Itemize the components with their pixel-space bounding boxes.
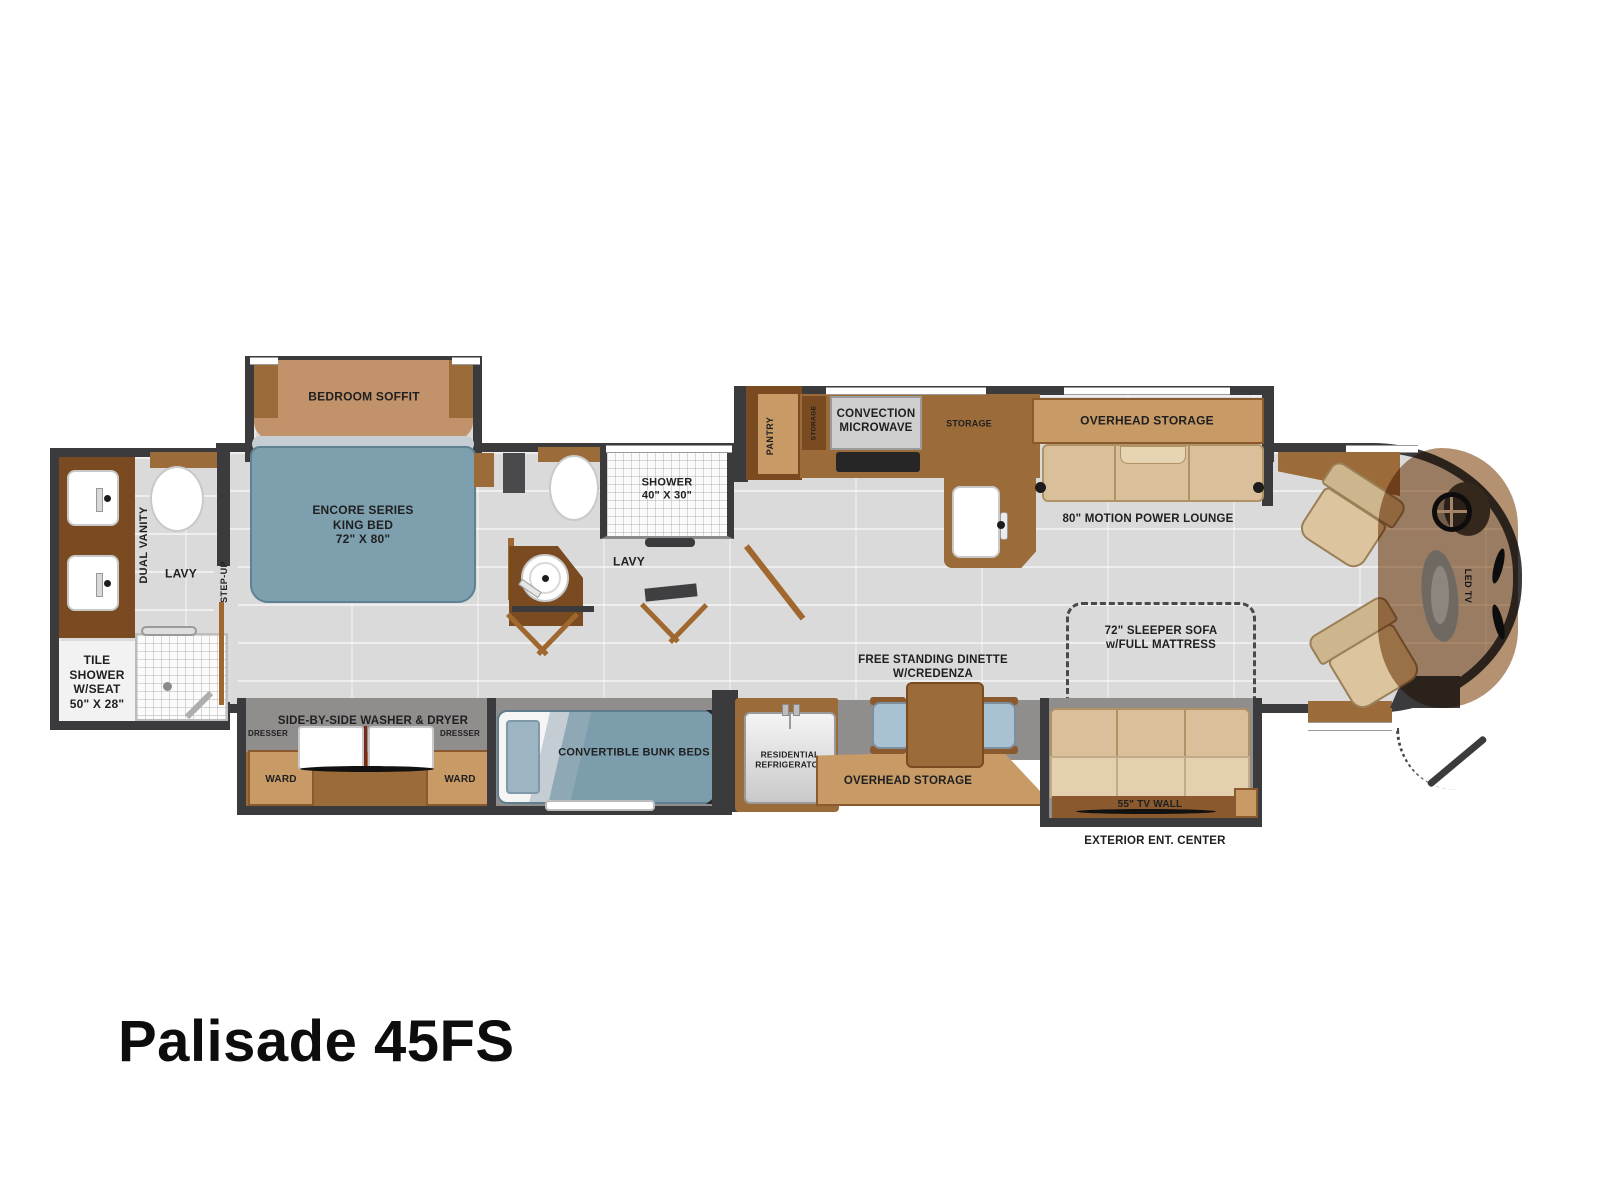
label-mid-shower: SHOWER 40" X 30" <box>642 477 693 504</box>
step-threshold <box>219 602 224 705</box>
sofa-seam <box>1114 446 1116 500</box>
plan-title: Palisade 45FS <box>118 1008 515 1075</box>
shower-drain-icon <box>163 682 172 691</box>
window <box>250 357 278 365</box>
toilet-icon <box>549 455 599 521</box>
sofa-seam <box>1188 446 1190 500</box>
recline-button <box>1253 482 1264 493</box>
fridge-handle <box>793 704 800 716</box>
washer-front-arc <box>300 766 434 772</box>
label-tv-wall: 55" TV WALL <box>1118 799 1183 811</box>
label-bunk-beds: CONVERTIBLE BUNK BEDS <box>558 746 710 759</box>
vanity-lip <box>512 606 594 612</box>
step-wall <box>217 448 229 566</box>
label-dual-vanity: DUAL VANITY <box>138 506 150 583</box>
label-overhead-storage-bottom: OVERHEAD STORAGE <box>844 774 972 788</box>
label-tile-shower: TILE SHOWER W/SEAT 50" X 28" <box>69 653 124 712</box>
washer-divider <box>364 726 367 770</box>
dinette-table <box>906 682 984 768</box>
sofa-seam <box>1116 758 1118 796</box>
label-sleeper-sofa: 72" SLEEPER SOFA w/FULL MATTRESS <box>1105 624 1218 652</box>
dryer-unit <box>368 726 434 770</box>
entry-window <box>1308 722 1392 731</box>
cooktop <box>836 452 920 472</box>
windshield-pod-inner <box>1431 566 1449 624</box>
label-dresser-left: DRESSER <box>248 729 288 739</box>
window <box>606 445 732 453</box>
sofa-seam <box>1116 710 1118 756</box>
label-washer-dryer: SIDE-BY-SIDE WASHER & DRYER <box>278 714 468 728</box>
label-step-up: STEP-UP <box>219 561 229 603</box>
label-power-lounge: 80" MOTION POWER LOUNGE <box>1062 512 1233 526</box>
label-storage: STORAGE <box>946 419 992 430</box>
sleeper-sofa-seats <box>1050 708 1250 758</box>
fridge-door-split <box>789 713 791 729</box>
faucet-dot <box>997 521 1005 529</box>
soffit-side-left <box>254 360 278 418</box>
label-ward-right: WARD <box>444 774 475 786</box>
soffit-side-right <box>449 360 473 418</box>
faucet-dot <box>104 580 111 587</box>
sofa-seam <box>1184 758 1186 796</box>
vanity-sink-bottom <box>67 555 119 611</box>
recline-button <box>1035 482 1046 493</box>
toilet-icon <box>150 466 204 532</box>
kitchen-sink <box>952 486 1000 558</box>
sofa-seam <box>1184 710 1186 756</box>
label-mid-lavy: LAVY <box>613 555 645 570</box>
pantry-interior <box>758 394 798 474</box>
shower-handle-icon <box>141 626 197 636</box>
sofa-console <box>1120 446 1186 464</box>
label-dresser-right: DRESSER <box>440 729 480 739</box>
label-storage-vertical: STORAGE <box>811 406 818 441</box>
rear-shower-pan <box>135 633 228 721</box>
window <box>1064 387 1230 395</box>
faucet-dot <box>542 575 549 582</box>
bunk-step <box>545 800 655 811</box>
label-king-bed: ENCORE SERIES KING BED 72" X 80" <box>312 503 413 547</box>
faucet-dot <box>104 495 111 502</box>
nightstand <box>474 453 494 487</box>
label-exterior-ent-center: EXTERIOR ENT. CENTER <box>1084 834 1225 848</box>
label-led-tv: LED TV <box>1463 569 1473 603</box>
label-microwave: CONVECTION MICROWAVE <box>837 407 916 435</box>
shower-door-handle <box>645 538 695 547</box>
label-rear-lavy: LAVY <box>165 567 197 582</box>
tv-side-cabinet <box>1234 788 1258 818</box>
bunk-pillow <box>506 720 540 794</box>
label-ward-left: WARD <box>265 774 296 786</box>
washer-unit <box>298 726 364 770</box>
vanity-sink-top <box>67 470 119 526</box>
faucet-icon <box>96 488 103 512</box>
fridge-handle <box>782 704 789 716</box>
floor-plan: DUAL VANITY LAVY TILE SHOWER W/SEAT 50" … <box>0 0 1600 1200</box>
hamper-cabinet <box>503 453 525 493</box>
sleeper-sofa-back <box>1050 756 1250 798</box>
faucet-icon <box>96 573 103 597</box>
label-overhead-storage-top: OVERHEAD STORAGE <box>1080 414 1214 429</box>
label-refrigerator: RESIDENTIAL REFRIGERATOR <box>755 750 825 771</box>
window <box>452 357 480 365</box>
entry-door-swing <box>1396 728 1456 790</box>
window <box>826 387 986 395</box>
label-dinette: FREE STANDING DINETTE W/CREDENZA <box>858 653 1008 681</box>
label-bedroom-soffit: BEDROOM SOFFIT <box>308 390 419 405</box>
label-pantry: PANTRY <box>765 417 775 455</box>
window <box>1346 445 1418 453</box>
